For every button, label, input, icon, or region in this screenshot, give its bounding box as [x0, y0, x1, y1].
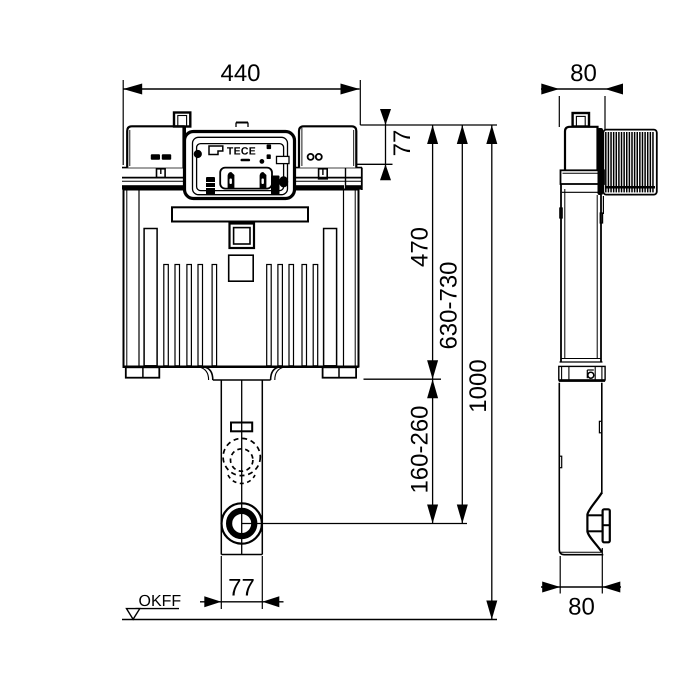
svg-text:1000: 1000: [465, 359, 492, 412]
svg-text:OKFF: OKFF: [139, 593, 182, 610]
svg-text:80: 80: [570, 60, 597, 87]
svg-text:77: 77: [228, 575, 255, 602]
svg-text:630-730: 630-730: [436, 261, 463, 349]
svg-text:80: 80: [568, 594, 595, 621]
svg-text:160-260: 160-260: [407, 405, 434, 493]
svg-text:440: 440: [220, 60, 260, 87]
svg-text:77: 77: [389, 130, 416, 157]
svg-text:TECE: TECE: [227, 145, 256, 157]
svg-text:470: 470: [407, 227, 434, 267]
